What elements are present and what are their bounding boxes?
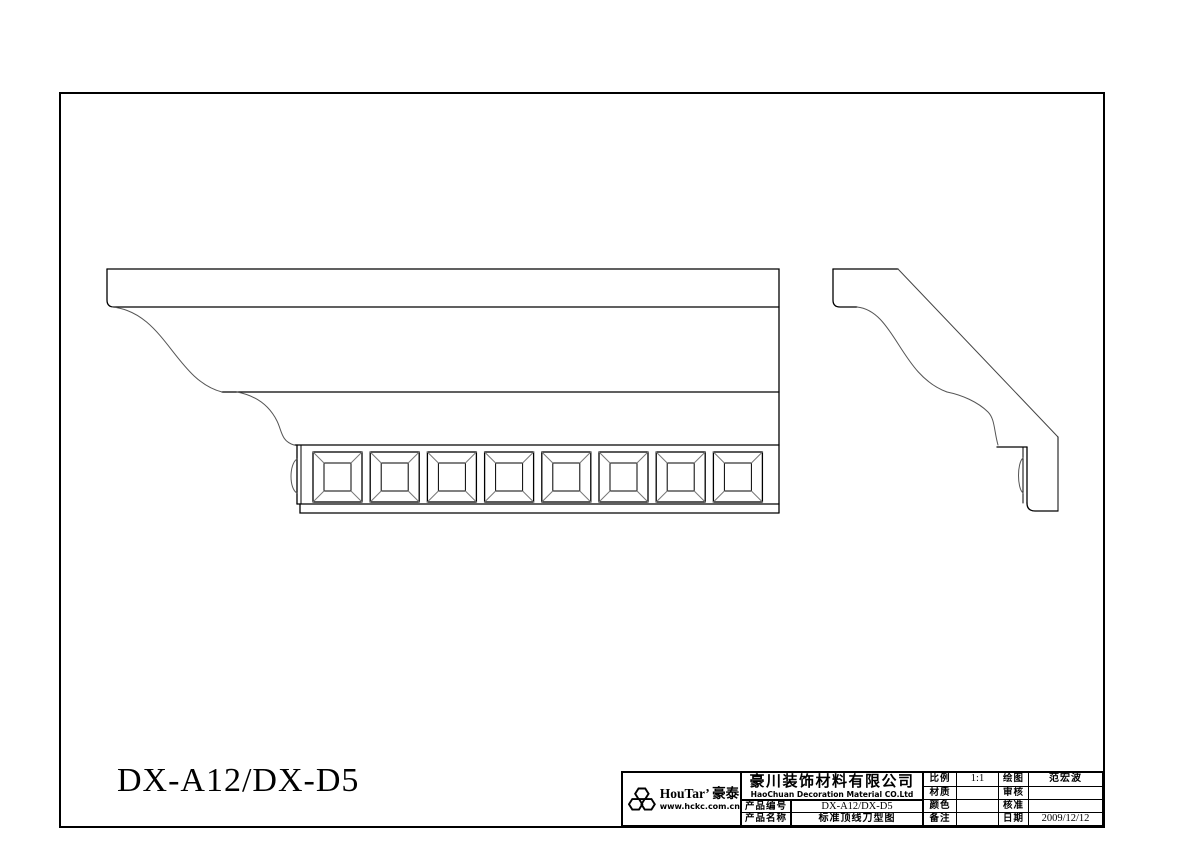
dentil-block: [713, 452, 762, 502]
product-name-field-label: 产品名称: [742, 813, 792, 825]
drawing-sheet: { "page": { "background_color": "#ffffff…: [0, 0, 1191, 842]
product-code-field-label: 产品编号: [742, 801, 792, 812]
cad-canvas: [0, 0, 1191, 842]
logo-cell: HouTar’ 豪泰 www.hckc.com.cn: [623, 773, 742, 825]
product-name-row: 产品名称 标准顶线刀型图: [742, 813, 922, 825]
section-lower-ogee: [947, 392, 998, 445]
approved-by-label: 核准: [998, 799, 1028, 812]
side-profile-view: [833, 269, 1058, 511]
section-end-cap-arc: [1019, 458, 1024, 493]
company-name-en: HaoChuan Decoration Material CO.Ltd: [747, 790, 918, 799]
brand-name: HouTar’ 豪泰: [660, 787, 740, 801]
product-name-field-value: 标准顶线刀型图: [792, 813, 922, 825]
honeycomb-hexagons-icon: [628, 786, 657, 813]
sheet-border: [60, 93, 1104, 827]
date-label: 日期: [998, 812, 1028, 825]
dentil-block: [485, 452, 534, 502]
approved-by-value: [1028, 799, 1102, 812]
fascia-top-and-right-edge: [107, 269, 779, 513]
brand-website: www.hckc.com.cn: [660, 803, 740, 811]
section-back-diagonal: [898, 269, 1058, 437]
remarks-value: [956, 812, 998, 825]
color-value: [956, 799, 998, 812]
dentil-block: [656, 452, 705, 502]
title-block-mid-section: 豪川装饰材料有限公司 HaoChuan Decoration Material …: [742, 773, 924, 825]
material-label: 材质: [924, 786, 956, 799]
lower-strip: [300, 504, 779, 513]
product-code-label: DX-A12/DX-D5: [117, 762, 359, 800]
dentil-block: [427, 452, 476, 502]
upper-ogee-curve: [112, 307, 222, 392]
end-cap-arc: [291, 459, 297, 493]
section-left-edge: [833, 269, 857, 307]
dentil-block: [542, 452, 591, 502]
checked-by-value: [1028, 786, 1102, 799]
material-value: [956, 786, 998, 799]
company-name-cn: 豪川装饰材料有限公司: [742, 773, 922, 790]
product-code-row: 产品编号 DX-A12/DX-D5: [742, 801, 922, 813]
product-code-field-value: DX-A12/DX-D5: [792, 801, 922, 812]
lower-ogee-curve: [237, 392, 294, 445]
title-block: HouTar’ 豪泰 www.hckc.com.cn 豪川装饰材料有限公司 Ha…: [621, 771, 1104, 827]
drawn-by-label: 绘图: [998, 773, 1028, 786]
scale-label: 比例: [924, 773, 956, 786]
remarks-label: 备注: [924, 812, 956, 825]
section-upper-ogee: [857, 307, 947, 392]
checked-by-label: 审核: [998, 786, 1028, 799]
dentil-band: [313, 452, 762, 502]
company-name-cell: 豪川装饰材料有限公司 HaoChuan Decoration Material …: [742, 773, 922, 801]
date-value: 2009/12/12: [1028, 812, 1102, 825]
drawn-by-value: 范宏波: [1028, 773, 1102, 786]
front-elevation-view: [107, 269, 779, 513]
fascia-left-edge: [107, 269, 114, 307]
scale-value: 1:1: [956, 773, 998, 786]
section-bottom-edge: [1027, 503, 1058, 511]
title-block-right-grid: 比例 1:1 绘图 范宏波 材质 审核 颜色 核准 备注 日期 2009/12/…: [924, 773, 1102, 825]
dentil-block: [599, 452, 648, 502]
color-label: 颜色: [924, 799, 956, 812]
dentil-block: [313, 452, 362, 502]
dentil-block: [370, 452, 419, 502]
